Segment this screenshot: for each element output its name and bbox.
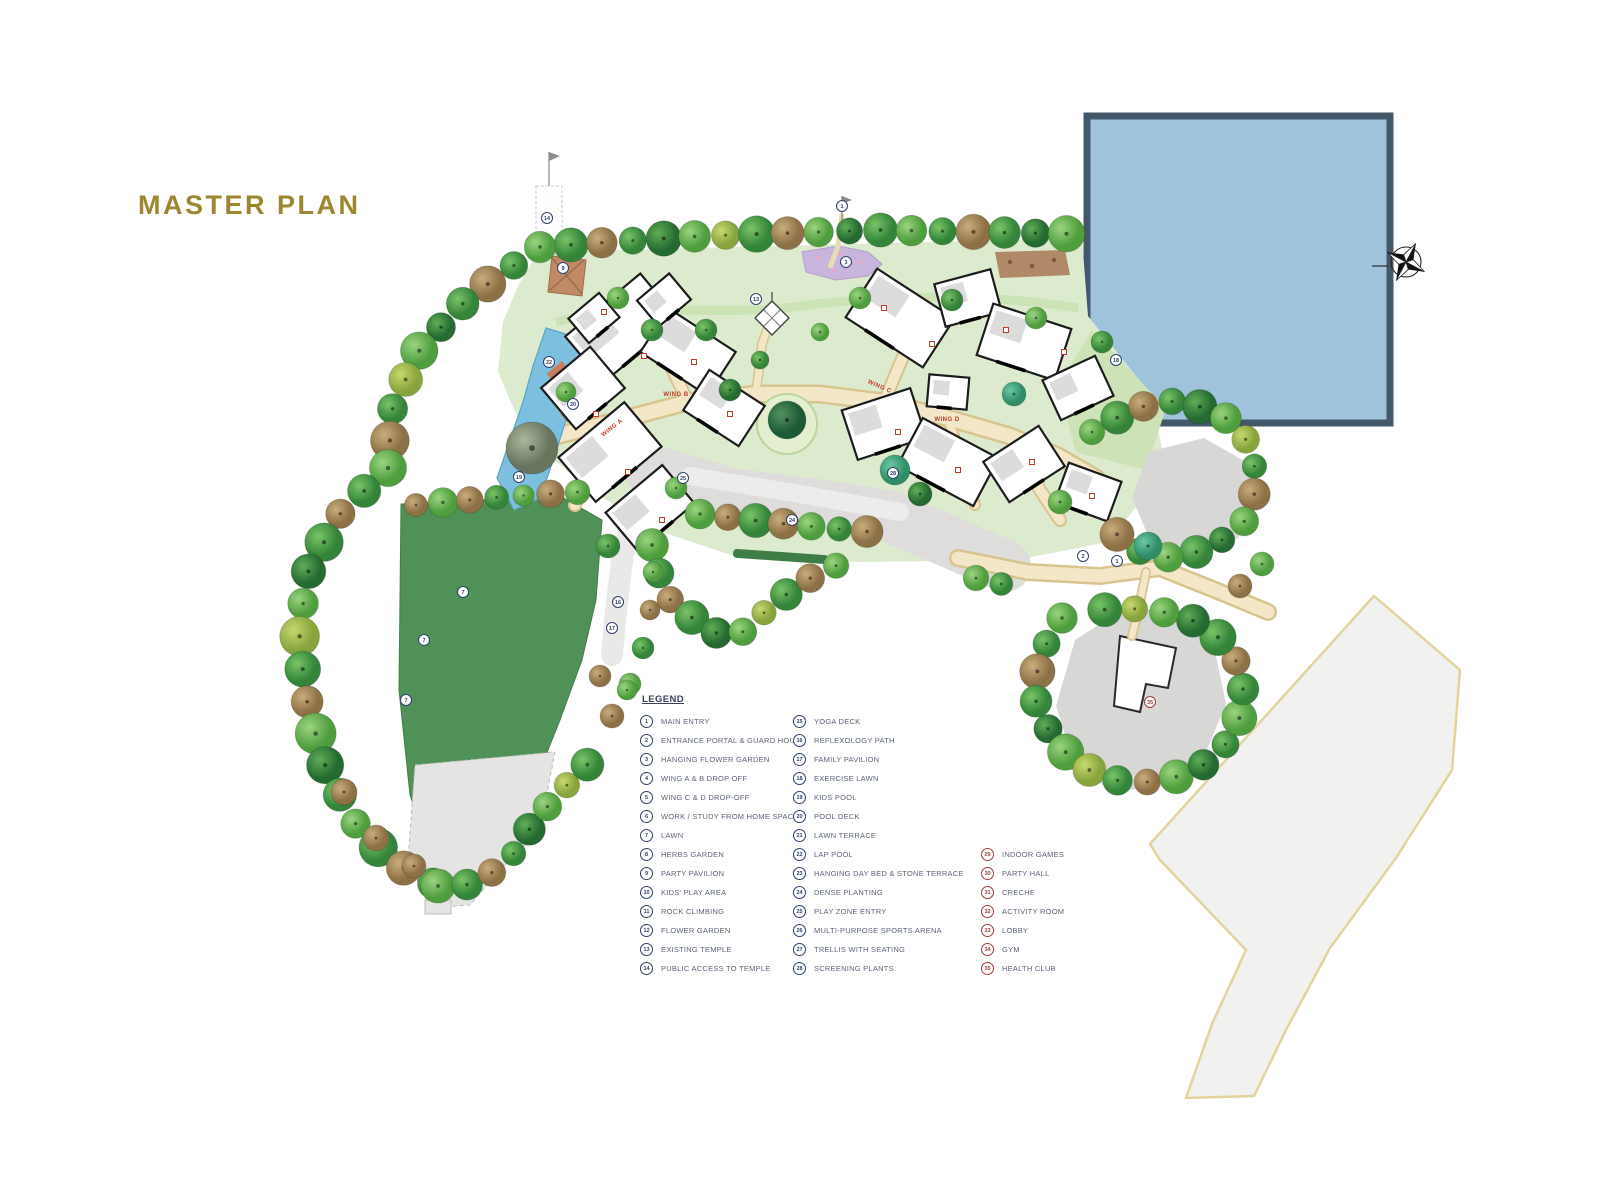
tree — [863, 213, 897, 247]
tree — [501, 841, 526, 866]
legend-item-number: 22 — [793, 848, 806, 861]
tree — [738, 216, 775, 253]
tree — [389, 363, 423, 397]
legend-item-label: FLOWER GARDEN — [661, 926, 731, 935]
tree — [929, 218, 956, 245]
legend-item-label: GYM — [1002, 945, 1020, 954]
legend-item: 29INDOOR GAMES — [981, 845, 1064, 864]
legend-item-label: ACTIVITY ROOM — [1002, 907, 1064, 916]
tree — [646, 221, 681, 256]
tree — [941, 289, 963, 311]
tree — [1100, 517, 1134, 551]
map-marker: 9 — [558, 263, 569, 274]
unit-marker — [956, 468, 961, 473]
legend-item-number: 30 — [981, 867, 994, 880]
legend-item-number: 21 — [793, 829, 806, 842]
legend-item-number: 14 — [640, 962, 653, 975]
tree — [908, 482, 932, 506]
legend-item-number: 3 — [640, 753, 653, 766]
legend-item: 5WING C & D DROP-OFF — [640, 788, 806, 807]
svg-text:25: 25 — [680, 476, 686, 482]
svg-text:22: 22 — [546, 360, 552, 366]
unit-marker — [602, 310, 607, 315]
legend-column-2: 15YOGA DECK16REFLEXOLOGY PATH17FAMILY PA… — [793, 712, 964, 978]
tree — [533, 792, 562, 821]
tree — [643, 562, 663, 582]
unit-marker — [728, 412, 733, 417]
tree — [796, 564, 825, 593]
legend-item-label: CRECHE — [1002, 888, 1035, 897]
tree — [963, 565, 989, 591]
tree — [1134, 769, 1160, 795]
legend-item: 17FAMILY PAVILION — [793, 750, 964, 769]
legend-item-label: WING A & B DROP OFF — [661, 774, 747, 783]
tree — [695, 319, 717, 341]
unit-marker — [692, 360, 697, 365]
unit-marker — [882, 306, 887, 311]
legend-item: 21LAWN TERRACE — [793, 826, 964, 845]
legend-item-label: LOBBY — [1002, 926, 1028, 935]
tree — [714, 504, 741, 531]
tree — [823, 553, 849, 579]
legend-column-3: 29INDOOR GAMES30PARTY HALL31CRECHE32ACTI… — [981, 845, 1064, 978]
legend-item-label: LAWN — [661, 831, 683, 840]
tree — [797, 512, 825, 540]
tree — [404, 493, 427, 516]
tree — [1222, 700, 1257, 735]
tree — [428, 488, 458, 518]
unit-marker — [896, 430, 901, 435]
unit-marker — [930, 342, 935, 347]
map-marker: 28 — [888, 468, 899, 479]
map-marker: 25 — [678, 473, 689, 484]
legend-item-number: 10 — [640, 886, 653, 899]
tree — [456, 486, 483, 513]
tree — [524, 231, 556, 263]
legend-item: 24DENSE PLANTING — [793, 883, 964, 902]
legend-item: 16REFLEXOLOGY PATH — [793, 731, 964, 750]
legend-item-number: 20 — [793, 810, 806, 823]
legend-item: 8HERBS GARDEN — [640, 845, 806, 864]
legend-item-number: 7 — [640, 829, 653, 842]
legend-item-label: EXERCISE LAWN — [814, 774, 879, 783]
legend-item: 33LOBBY — [981, 921, 1064, 940]
legend-item-label: FAMILY PAVILION — [814, 755, 879, 764]
legend-item-label: DENSE PLANTING — [814, 888, 883, 897]
legend-item-label: SCREENING PLANTS — [814, 964, 894, 973]
legend-item: 32ACTIVITY ROOM — [981, 902, 1064, 921]
legend-item-label: HERBS GARDEN — [661, 850, 724, 859]
svg-text:7: 7 — [461, 590, 464, 596]
legend-item-label: PUBLIC ACCESS TO TEMPLE — [661, 964, 771, 973]
unit-marker — [1004, 328, 1009, 333]
map-marker: 20 — [568, 399, 579, 410]
svg-text:13: 13 — [753, 297, 759, 303]
tree — [632, 637, 654, 659]
map-marker: 14 — [542, 213, 553, 224]
tree — [1073, 753, 1106, 786]
svg-text:17: 17 — [609, 626, 615, 632]
legend-item-label: LAP POOL — [814, 850, 853, 859]
tree — [513, 485, 534, 506]
legend-item: 15YOGA DECK — [793, 712, 964, 731]
legend-item: 12FLOWER GARDEN — [640, 921, 806, 940]
map-marker: 1 — [837, 201, 848, 212]
map-marker: 13 — [751, 294, 762, 305]
svg-text:24: 24 — [789, 518, 796, 524]
legend-item-label: WING C & D DROP-OFF — [661, 793, 750, 802]
legend-column-1: 1MAIN ENTRY2ENTRANCE PORTAL & GUARD HOUS… — [640, 712, 806, 978]
legend-item-label: POOL DECK — [814, 812, 860, 821]
unit-marker — [626, 470, 631, 475]
tree — [990, 572, 1013, 595]
tree — [402, 854, 426, 878]
legend-item-label: ROCK CLIMBING — [661, 907, 724, 916]
tree — [1149, 597, 1179, 627]
legend-item: 18EXERCISE LAWN — [793, 769, 964, 788]
legend-item-number: 19 — [793, 791, 806, 804]
wing-label: WING D — [934, 417, 959, 423]
legend-item: 35HEALTH CLUB — [981, 959, 1064, 978]
legend-item: 13EXISTING TEMPLE — [640, 940, 806, 959]
tree — [701, 617, 732, 648]
wing-label: WING B — [663, 392, 688, 398]
tree — [1238, 478, 1270, 510]
legend-item-number: 16 — [793, 734, 806, 747]
legend-item: 4WING A & B DROP OFF — [640, 769, 806, 788]
legend-item-number: 26 — [793, 924, 806, 937]
legend-item: 31CRECHE — [981, 883, 1064, 902]
unit-marker — [594, 412, 599, 417]
legend-item-number: 6 — [640, 810, 653, 823]
legend-item-number: 8 — [640, 848, 653, 861]
legend-item-number: 11 — [640, 905, 653, 918]
tree — [446, 287, 479, 320]
legend-item-label: WORK / STUDY FROM HOME SPACES — [661, 812, 804, 821]
legend-item: 7LAWN — [640, 826, 806, 845]
tree — [1188, 749, 1219, 780]
tree — [596, 534, 620, 558]
tree — [956, 214, 991, 249]
map-marker: 24 — [787, 515, 798, 526]
legend-item-number: 1 — [640, 715, 653, 728]
legend-item-label: PARTY HALL — [1002, 869, 1050, 878]
legend-item-number: 31 — [981, 886, 994, 899]
svg-text:2: 2 — [1081, 554, 1084, 560]
map-marker: 19 — [514, 472, 525, 483]
svg-text:7: 7 — [422, 638, 425, 644]
tree — [1230, 507, 1259, 536]
legend-item-number: 24 — [793, 886, 806, 899]
legend-item-number: 4 — [640, 772, 653, 785]
tree — [1002, 382, 1026, 406]
legend-item-label: KIDS' PLAY AREA — [661, 888, 726, 897]
tree — [363, 825, 389, 851]
tree — [288, 588, 319, 619]
tree — [1180, 535, 1213, 568]
svg-text:19: 19 — [516, 475, 522, 481]
svg-text:3: 3 — [844, 260, 847, 266]
legend-item-label: HANGING FLOWER GARDEN — [661, 755, 770, 764]
svg-text:7: 7 — [404, 698, 407, 704]
tree — [752, 600, 777, 625]
legend-item-number: 28 — [793, 962, 806, 975]
tree — [589, 665, 611, 687]
legend-item-label: MAIN ENTRY — [661, 717, 710, 726]
legend-item-number: 9 — [640, 867, 653, 880]
legend-item-number: 34 — [981, 943, 994, 956]
legend-item-number: 13 — [640, 943, 653, 956]
legend-header: LEGEND — [642, 694, 1220, 705]
tree — [988, 216, 1020, 248]
tree — [1091, 331, 1113, 353]
tree — [851, 515, 883, 547]
unit-marker — [1030, 460, 1035, 465]
legend-item-label: PLAY ZONE ENTRY — [814, 907, 887, 916]
legend-item: 20POOL DECK — [793, 807, 964, 826]
tree — [1048, 215, 1085, 252]
legend-item-number: 33 — [981, 924, 994, 937]
svg-text:1: 1 — [1115, 559, 1118, 565]
legend-item-number: 2 — [640, 734, 653, 747]
legend-item: 22LAP POOL — [793, 845, 964, 864]
tree — [1103, 766, 1133, 796]
map-marker: 17 — [607, 623, 618, 634]
tree — [1021, 219, 1050, 248]
legend-item: 1MAIN ENTRY — [640, 712, 806, 731]
legend-item-number: 12 — [640, 924, 653, 937]
legend-item-number: 27 — [793, 943, 806, 956]
tree — [685, 499, 715, 529]
tree — [719, 379, 741, 401]
tree — [565, 480, 590, 505]
svg-text:18: 18 — [1113, 358, 1119, 364]
legend-item-label: HEALTH CLUB — [1002, 964, 1056, 973]
tree — [1025, 307, 1047, 329]
tree — [619, 227, 646, 254]
legend-item: 23HANGING DAY BED & STONE TERRACE — [793, 864, 964, 883]
legend-item-label: PARTY PAVILION — [661, 869, 724, 878]
tree — [485, 485, 509, 509]
legend-item-label: KIDS POOL — [814, 793, 857, 802]
legend-item-label: TRELLIS WITH SEATING — [814, 945, 905, 954]
tree — [537, 480, 565, 508]
tree — [1232, 425, 1260, 453]
legend-item-label: ENTRANCE PORTAL & GUARD HOUSE — [661, 736, 806, 745]
legend-item: 19KIDS POOL — [793, 788, 964, 807]
tree — [751, 351, 769, 369]
legend-item-label: MULTI-PURPOSE SPORTS ARENA — [814, 926, 942, 935]
tree — [331, 779, 357, 805]
legend: LEGEND 1MAIN ENTRY2ENTRANCE PORTAL & GUA… — [640, 694, 1220, 712]
unit-marker — [1090, 494, 1095, 499]
legend-item: 2ENTRANCE PORTAL & GUARD HOUSE — [640, 731, 806, 750]
map-marker: 7 — [419, 635, 430, 646]
map-marker: 18 — [1111, 355, 1122, 366]
tree — [1128, 391, 1158, 421]
svg-text:28: 28 — [890, 471, 896, 477]
tree — [771, 217, 804, 250]
legend-item: 27TRELLIS WITH SEATING — [793, 940, 964, 959]
legend-item: 14PUBLIC ACCESS TO TEMPLE — [640, 959, 806, 978]
svg-text:20: 20 — [570, 402, 576, 408]
legend-item-label: REFLEXOLOGY PATH — [814, 736, 895, 745]
legend-item: 9PARTY PAVILION — [640, 864, 806, 883]
map-marker: 7 — [401, 695, 412, 706]
legend-item-number: 32 — [981, 905, 994, 918]
tree — [506, 422, 558, 474]
map-marker: 22 — [544, 357, 555, 368]
building — [927, 374, 970, 409]
legend-item-number: 25 — [793, 905, 806, 918]
tree — [617, 680, 637, 700]
legend-item-number: 29 — [981, 848, 994, 861]
tree — [478, 859, 506, 887]
tree — [1242, 454, 1267, 479]
legend-item: 3HANGING FLOWER GARDEN — [640, 750, 806, 769]
tree — [640, 600, 660, 620]
legend-item-label: LAWN TERRACE — [814, 831, 876, 840]
tree — [377, 394, 407, 424]
legend-item-number: 23 — [793, 867, 806, 880]
tree — [347, 474, 380, 507]
tree — [1088, 593, 1122, 627]
legend-item: 10KIDS' PLAY AREA — [640, 883, 806, 902]
tree — [554, 228, 588, 262]
legend-item-number: 5 — [640, 791, 653, 804]
tree — [1227, 673, 1259, 705]
svg-text:1: 1 — [840, 204, 843, 210]
tree — [849, 287, 871, 309]
map-marker: 2 — [1078, 551, 1089, 562]
master-plan-page: MASTER PLAN — [0, 0, 1600, 1200]
tree — [291, 554, 326, 589]
map-marker: 7 — [458, 587, 469, 598]
tree — [1176, 604, 1209, 637]
legend-item-number: 18 — [793, 772, 806, 785]
tree — [896, 215, 927, 246]
tree — [711, 221, 740, 250]
tree — [804, 217, 834, 247]
tree — [641, 319, 663, 341]
tree — [827, 517, 852, 542]
tree — [1159, 388, 1186, 415]
legend-item: 6WORK / STUDY FROM HOME SPACES — [640, 807, 806, 826]
legend-item: 25PLAY ZONE ENTRY — [793, 902, 964, 921]
tree — [729, 618, 757, 646]
tree — [1134, 532, 1162, 560]
svg-text:16: 16 — [615, 600, 621, 606]
svg-text:9: 9 — [561, 266, 564, 272]
tree — [811, 323, 829, 341]
legend-item-label: YOGA DECK — [814, 717, 860, 726]
tree — [586, 227, 617, 258]
legend-item-label: INDOOR GAMES — [1002, 850, 1064, 859]
tree — [285, 651, 321, 687]
tree — [607, 287, 629, 309]
map-marker: 1 — [1112, 556, 1123, 567]
tree — [1020, 654, 1055, 689]
tree — [768, 401, 806, 439]
legend-item: 34GYM — [981, 940, 1064, 959]
legend-item-number: 17 — [793, 753, 806, 766]
tree — [836, 218, 862, 244]
tree — [635, 528, 668, 561]
unit-marker — [660, 518, 665, 523]
tree — [421, 869, 455, 903]
legend-item: 26MULTI-PURPOSE SPORTS ARENA — [793, 921, 964, 940]
map-marker: 3 — [841, 257, 852, 268]
tree — [679, 220, 711, 252]
site-plan-drawing: WING AWING BWING CWING D 141133922201977… — [0, 0, 1600, 1200]
tree — [1121, 596, 1147, 622]
legend-item-label: HANGING DAY BED & STONE TERRACE — [814, 869, 964, 878]
legend-item: 30PARTY HALL — [981, 864, 1064, 883]
tree — [1250, 552, 1274, 576]
legend-item-number: 35 — [981, 962, 994, 975]
legend-item-label: EXISTING TEMPLE — [661, 945, 732, 954]
tree — [280, 616, 320, 656]
tree — [571, 748, 604, 781]
tree — [1047, 603, 1078, 634]
svg-text:14: 14 — [544, 216, 551, 222]
legend-item: 11ROCK CLIMBING — [640, 902, 806, 921]
legend-item-number: 15 — [793, 715, 806, 728]
tree — [600, 704, 624, 728]
legend-item: 28SCREENING PLANTS — [793, 959, 964, 978]
unit-marker — [1062, 350, 1067, 355]
tree — [738, 503, 772, 537]
tree — [1048, 490, 1072, 514]
tree — [1228, 574, 1252, 598]
map-marker: 16 — [613, 597, 624, 608]
unit-marker — [642, 354, 647, 359]
